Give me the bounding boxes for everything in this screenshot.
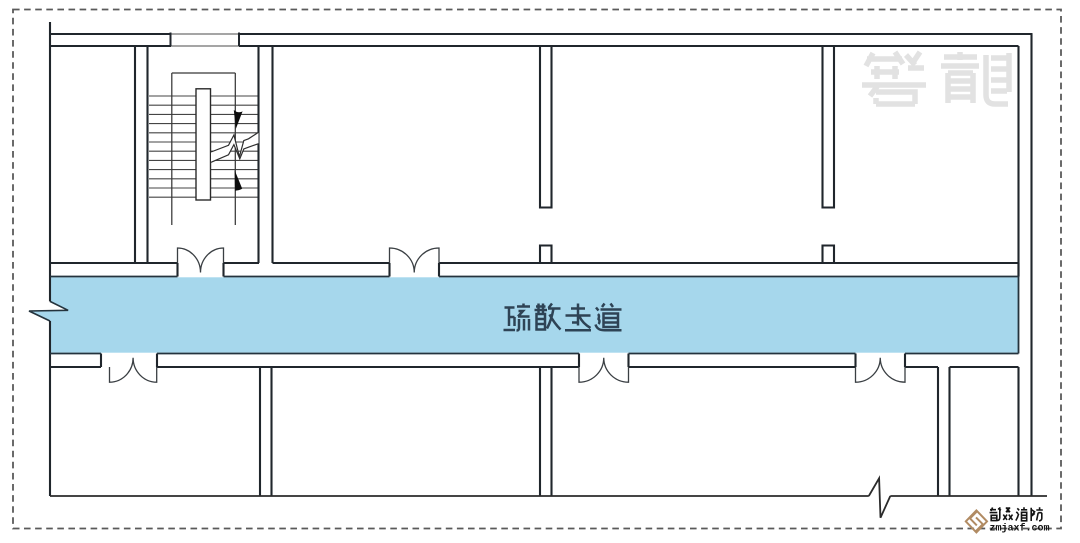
svg-text:zmjaxf.com: zmjaxf.com (990, 523, 1050, 535)
